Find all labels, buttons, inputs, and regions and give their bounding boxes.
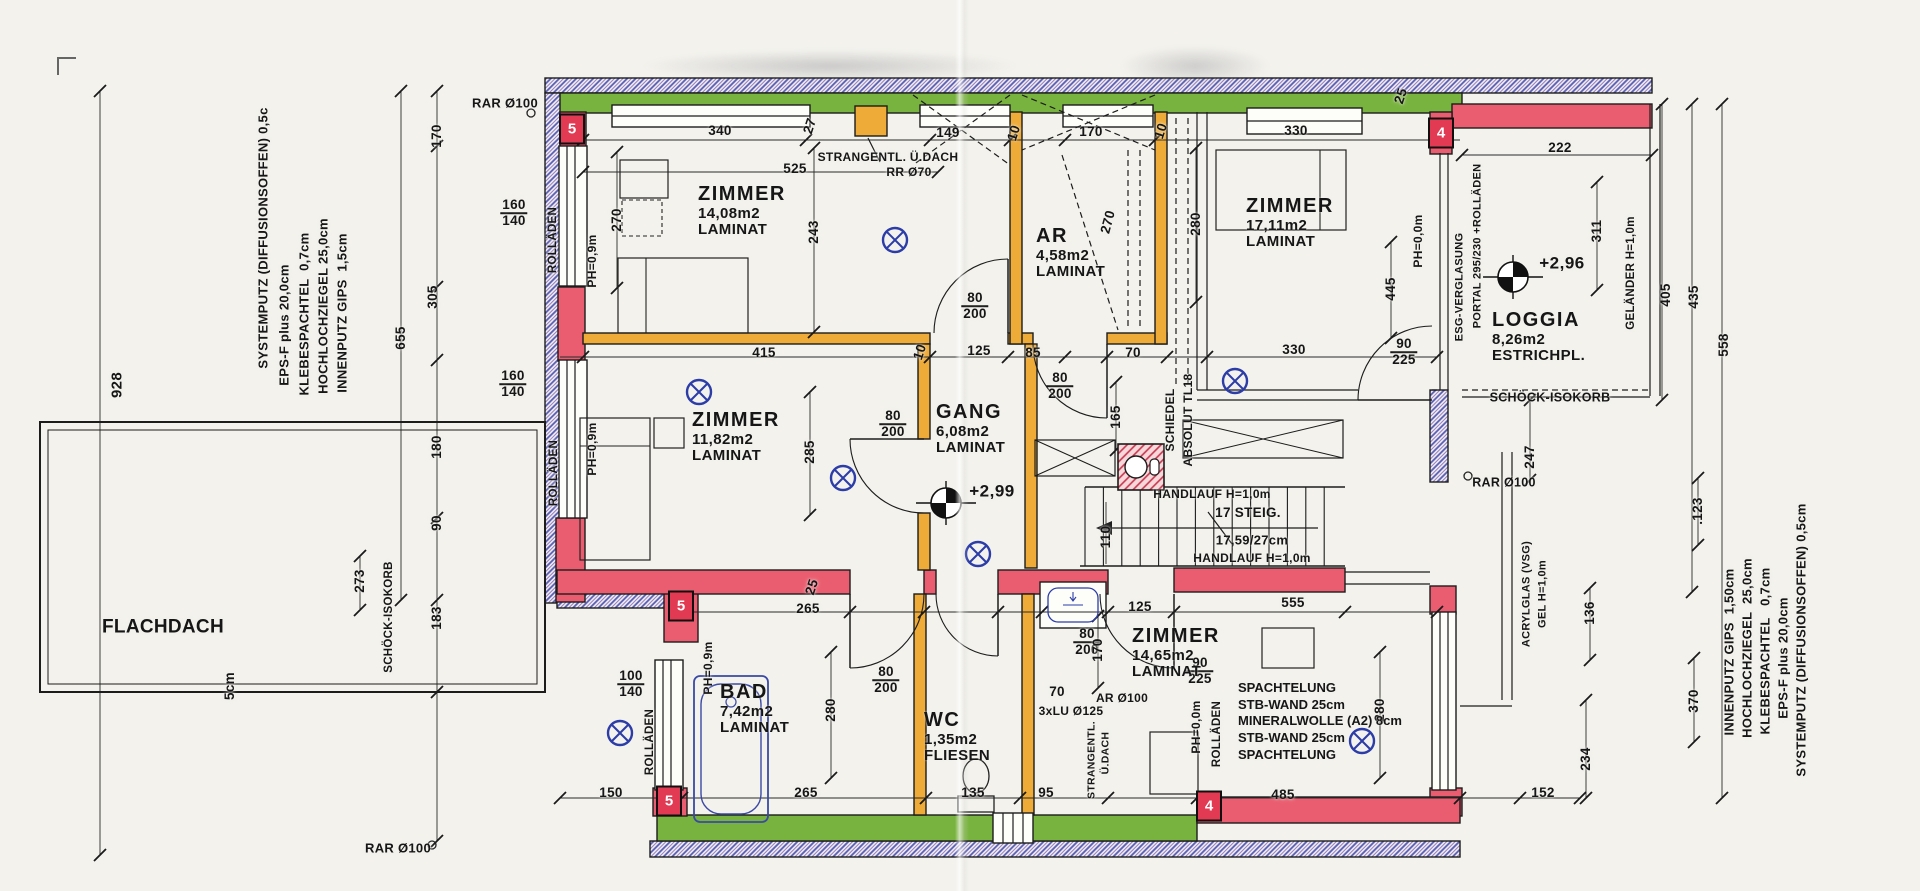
ceiling-fixture-icon	[883, 228, 907, 252]
ceiling-fixture-icon	[608, 721, 632, 745]
scan-crease	[955, 0, 969, 891]
level-marker-icon	[1483, 255, 1543, 299]
chimney-icon	[1118, 444, 1164, 490]
ceiling-fixture-icon	[966, 542, 990, 566]
thin-walls-and-details	[40, 58, 1660, 843]
scan-smudge	[1120, 46, 1270, 86]
staircase	[1035, 420, 1345, 566]
dimension-lines	[94, 85, 1728, 861]
bathtub-icon	[694, 676, 768, 822]
ceiling-fixture-icon	[687, 380, 711, 404]
ceiling-fixture-icon	[831, 466, 855, 490]
walls	[545, 78, 1652, 857]
symbols	[428, 109, 1543, 849]
scanned-floor-plan: 3402714910170103302522252516014027024327…	[0, 0, 1920, 891]
ceiling-fixture-icon	[1350, 729, 1374, 753]
fixtures	[694, 588, 1098, 822]
